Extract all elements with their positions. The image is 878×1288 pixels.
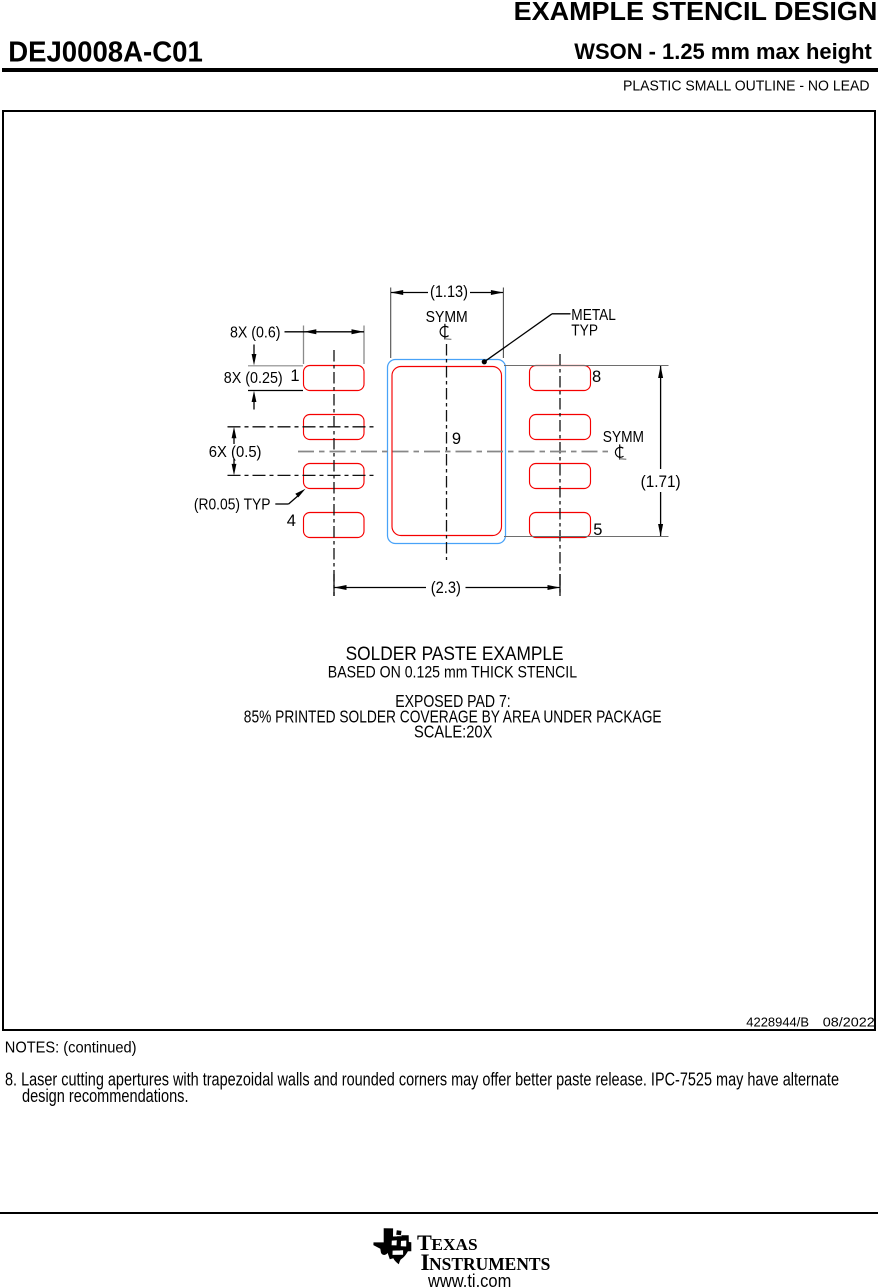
svg-text:(R0.05) TYP: (R0.05) TYP <box>194 496 271 513</box>
svg-text:8: 8 <box>592 368 601 386</box>
svg-text:(2.3): (2.3) <box>431 578 461 597</box>
svg-text:(1.71): (1.71) <box>641 472 681 491</box>
svg-text:www.ti.com: www.ti.com <box>427 1271 511 1288</box>
svg-text:design recommendations.: design recommendations. <box>22 1086 189 1106</box>
svg-text:4228944/B: 4228944/B <box>746 1014 809 1029</box>
svg-text:TYP: TYP <box>571 323 598 340</box>
svg-text:08/2022: 08/2022 <box>823 1014 875 1029</box>
svg-text:NOTES: (continued): NOTES: (continued) <box>5 1039 137 1056</box>
svg-text:5: 5 <box>593 521 602 539</box>
svg-text:6X (0.5): 6X (0.5) <box>209 444 262 461</box>
svg-text:SCALE:20X: SCALE:20X <box>414 722 493 742</box>
svg-text:METAL: METAL <box>571 307 616 324</box>
svg-text:EXAS: EXAS <box>431 1235 477 1254</box>
svg-text:EXAMPLE STENCIL DESIGN: EXAMPLE STENCIL DESIGN <box>514 0 878 26</box>
svg-text:DEJ0008A-C01: DEJ0008A-C01 <box>8 36 203 68</box>
svg-text:PLASTIC SMALL OUTLINE - NO LEA: PLASTIC SMALL OUTLINE - NO LEAD <box>623 78 870 95</box>
svg-text:1: 1 <box>290 367 299 385</box>
svg-text:BASED ON 0.125 mm THICK STENCI: BASED ON 0.125 mm THICK STENCIL <box>328 662 577 681</box>
svg-text:WSON - 1.25 mm max height: WSON - 1.25 mm max height <box>574 39 872 64</box>
svg-text:(1.13): (1.13) <box>430 282 468 301</box>
svg-text:8X (0.25): 8X (0.25) <box>224 370 283 387</box>
svg-text:9: 9 <box>452 430 461 448</box>
svg-text:SYMM: SYMM <box>426 309 468 326</box>
svg-text:4: 4 <box>287 512 296 530</box>
svg-text:SYMM: SYMM <box>603 429 644 446</box>
svg-text:8X (0.6): 8X (0.6) <box>230 325 281 342</box>
